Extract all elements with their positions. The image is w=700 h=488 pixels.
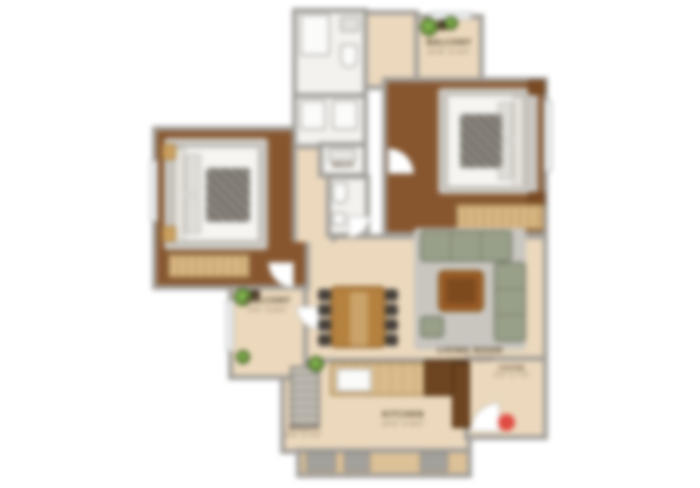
- basin-2-icon: [332, 212, 346, 226]
- pillow-icon: [185, 196, 201, 234]
- ottoman-icon: [420, 316, 444, 338]
- wash-basin-2-icon: [328, 148, 356, 162]
- nightstand-icon: [528, 80, 545, 95]
- balcony-left-size: 4'0" X 8'6": [228, 306, 308, 314]
- potted-plant-icon: [420, 18, 438, 36]
- label-living: LIVING ROOM 16'5" X 11'0": [418, 346, 522, 365]
- dining-chair-icon: [385, 319, 398, 331]
- foyer-cabinet-icon: [452, 362, 470, 428]
- kitchen-sink-icon: [336, 368, 372, 392]
- potted-plant-icon: [308, 356, 324, 372]
- potted-plant-icon: [236, 350, 250, 364]
- dining-chair-icon: [385, 289, 398, 301]
- floor-plan: BALCONY 10'6" X 4'0" BALCONY 4'0" X 8'6"…: [0, 0, 700, 488]
- stove-icon: [306, 452, 336, 472]
- sofa-chaise-icon: [494, 262, 526, 342]
- label-utility: UTILITY 6'0" X 3'0": [280, 424, 328, 440]
- duvet-icon: [206, 168, 250, 222]
- floor-plan-canvas: BALCONY 10'6" X 4'0" BALCONY 4'0" X 8'6"…: [0, 0, 700, 488]
- dining-chair-icon: [318, 289, 331, 301]
- living-name: LIVING ROOM: [418, 346, 522, 356]
- washer-icon: [420, 452, 448, 472]
- wardrobe-bedroom-left: [168, 254, 250, 278]
- headboard-icon: [513, 96, 524, 188]
- wash-name: WASH: [318, 162, 368, 170]
- kitchen-shelf-unit-icon: [290, 366, 320, 428]
- table-runner: [350, 292, 368, 346]
- dining-chair-icon: [385, 304, 398, 316]
- sofa-icon: [420, 230, 512, 262]
- dining-chair-icon: [318, 319, 331, 331]
- bedside-stool-icon: [162, 226, 176, 242]
- potted-plant-icon: [444, 16, 458, 30]
- dining-chair-icon: [318, 334, 331, 346]
- coffee-table-icon: [438, 270, 484, 312]
- washbasin-icon: [340, 16, 360, 32]
- foyer-size: 5'0" X 7'0": [486, 372, 538, 380]
- window-left-bedroom: [150, 160, 158, 222]
- toilet-2-icon: [332, 182, 348, 204]
- laundry-counter-icon: [332, 100, 358, 130]
- bedside-stool-icon: [162, 144, 176, 160]
- entry-marker-icon: [498, 414, 515, 431]
- kitchen-name: KITCHEN: [366, 410, 440, 420]
- washing-machine-icon: [300, 100, 326, 130]
- duvet-icon: [460, 114, 502, 168]
- balcony-top-size: 10'6" X 4'0": [414, 48, 484, 56]
- dining-chair-icon: [385, 334, 398, 346]
- label-foyer: FOYER 5'0" X 7'0": [486, 364, 538, 380]
- dining-table-icon: [330, 286, 386, 348]
- foyer-name: FOYER: [486, 364, 538, 372]
- label-kitchen: KITCHEN 10'0" X 8'0": [366, 410, 440, 429]
- balcony-top-name: BALCONY: [414, 38, 484, 48]
- utility-size: 6'0" X 3'0": [280, 432, 328, 440]
- utility-name: UTILITY: [280, 424, 328, 432]
- wardrobe-bedroom-right: [456, 204, 544, 230]
- balcony-left-name: BALCONY: [228, 296, 308, 306]
- kitchen-size: 10'0" X 8'0": [366, 420, 440, 428]
- bed-bedroom-right: [446, 94, 526, 188]
- window-right-bedroom: [544, 100, 552, 172]
- bed-bedroom-left: [172, 146, 260, 242]
- label-balcony-left: BALCONY 4'0" X 8'6": [228, 296, 308, 315]
- pillow-icon: [185, 154, 201, 194]
- toilet-icon: [340, 44, 358, 68]
- label-balcony-top: BALCONY 10'6" X 4'0": [414, 38, 484, 57]
- shower-icon: [300, 14, 330, 56]
- dining-chair-icon: [318, 304, 331, 316]
- label-wash: WASH: [318, 162, 368, 170]
- utility-sink-icon: [344, 452, 370, 472]
- coffee-table-top: [446, 278, 476, 304]
